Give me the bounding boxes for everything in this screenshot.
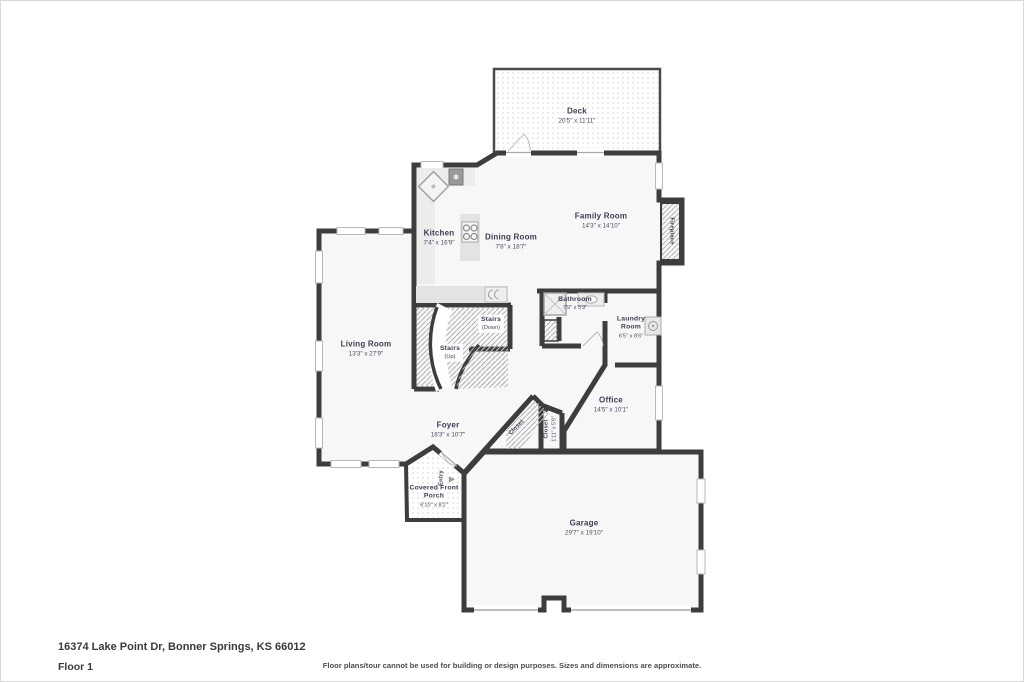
floor-plan-drawing (1, 1, 1023, 681)
shower-icon (544, 293, 566, 315)
fireplace (661, 203, 680, 260)
deck-outline (494, 69, 660, 153)
toilet-icon (544, 320, 558, 341)
garage-outline (464, 452, 701, 610)
kitchen-island-cooktop-icon (460, 214, 480, 261)
entry-arrow-icon: ▶ (449, 475, 455, 484)
kitchen-appliance-icon (449, 169, 463, 185)
kitchen-sink-icon (485, 287, 507, 302)
disclaimer-text: Floor plans/tour cannot be used for buil… (1, 661, 1023, 670)
washer-icon (645, 317, 661, 335)
garage-door-openings (474, 605, 691, 615)
bathroom-sink-icon (578, 293, 604, 306)
floor-plan-canvas: Deck20'5" x 11'11" Family Room14'3" x 14… (0, 0, 1024, 682)
address-text: 16374 Lake Point Dr, Bonner Springs, KS … (58, 641, 306, 653)
stairs (417, 307, 509, 389)
